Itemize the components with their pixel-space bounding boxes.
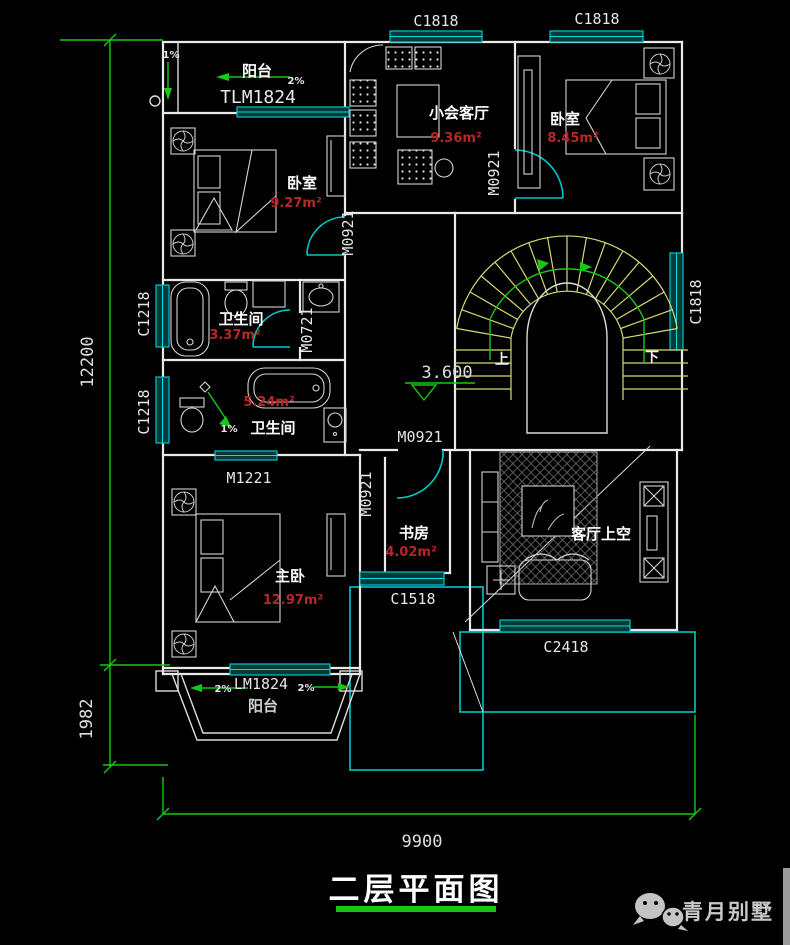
door-label-m0921-bedroom-right: M0921 xyxy=(485,150,503,195)
room-label-balcony-bottom: 阳台 xyxy=(248,697,278,715)
room-label-study: 书房 xyxy=(399,524,429,542)
slope-label-bb-right: 2% xyxy=(298,683,315,694)
door-m1221-band xyxy=(215,451,277,460)
master-furniture xyxy=(172,489,345,657)
room-label-living-void: 客厅上空 xyxy=(570,525,631,543)
window-label-c2418: C2418 xyxy=(543,638,588,656)
slope-label-bath-lower: 1% xyxy=(221,424,238,435)
wechat-icon xyxy=(633,893,688,931)
cad-floorplan-screen: C1818 C1818 C1818 C1218 C1218 C1518 C241… xyxy=(0,0,790,945)
bedroom-left-furniture xyxy=(171,128,345,256)
window-label-c1818-top-left: C1818 xyxy=(413,12,458,30)
window-label-c1818-stair: C1818 xyxy=(687,279,705,324)
title-underline xyxy=(336,906,496,912)
area-label-parlor: 9.36m² xyxy=(430,131,481,146)
slope-arrowhead-bb-left xyxy=(190,684,202,692)
room-label-parlor: 小会客厅 xyxy=(429,104,489,122)
walkline-arrow-1 xyxy=(537,259,549,271)
windows xyxy=(156,31,683,675)
dim-lines-bottom xyxy=(163,715,695,814)
slope-arrow-bath-lower xyxy=(208,392,226,419)
area-label-bath-upper: 3.37m² xyxy=(209,328,260,343)
door-label-m0921-hall: M0921 xyxy=(397,428,442,446)
door-tlm1824-band xyxy=(237,107,349,117)
area-label-bath-lower: 5.24m² xyxy=(243,395,294,410)
dim-width: 9900 xyxy=(402,832,443,852)
area-label-study: 4.02m² xyxy=(385,545,436,560)
window-c1218-bath-lower xyxy=(156,377,169,443)
level-marker-line xyxy=(405,383,475,400)
window-c2418-living xyxy=(500,620,630,632)
window-c1818-stair xyxy=(670,253,683,350)
door-label-m0721: M0721 xyxy=(298,307,316,352)
door-label-tlm1824: TLM1824 xyxy=(220,87,296,108)
room-label-master: 主卧 xyxy=(275,567,305,585)
door-label-m0921-study: M0921 xyxy=(357,471,375,516)
door-label-m1221: M1221 xyxy=(226,469,271,487)
dim-height-balcony: 1982 xyxy=(77,699,97,740)
window-label-c1218-lower: C1218 xyxy=(135,389,153,434)
window-label-c1518: C1518 xyxy=(390,590,435,608)
door-bedroom-right-swing xyxy=(515,150,563,198)
door-lm1824-band xyxy=(230,664,330,675)
slope-arrowhead-side xyxy=(164,88,172,100)
stairwell-opening xyxy=(527,283,607,433)
room-label-bath-upper: 卫生间 xyxy=(218,310,263,328)
watermark-edge-bar xyxy=(783,868,790,945)
door-label-m0921-bedroom-left: M0921 xyxy=(339,210,357,255)
watermark-text: 青月别墅 xyxy=(682,900,774,924)
roof-tiles xyxy=(350,587,695,770)
area-label-bedroom-left: 9.27m² xyxy=(270,196,321,211)
dim-height-main: 12200 xyxy=(78,336,98,387)
door-label-lm1824: LM1824 xyxy=(234,675,288,693)
roof-seam xyxy=(453,632,483,712)
slope-label-side: 1% xyxy=(163,50,180,61)
staircase xyxy=(455,236,688,433)
room-label-bath-lower: 卫生间 xyxy=(250,419,295,437)
stair-down-label: 下 xyxy=(645,350,659,366)
bedroom-right-furniture xyxy=(518,48,674,190)
window-c1518-study xyxy=(360,572,444,585)
area-label-master: 12.97m² xyxy=(263,593,323,608)
slope-arrowhead-balcony-top xyxy=(216,73,229,81)
dim-lines-left xyxy=(60,40,170,767)
roof-section-left xyxy=(350,587,483,770)
slope-label-bb-left: 2% xyxy=(215,684,232,695)
window-c1818-top-left xyxy=(390,31,482,42)
window-label-c1818-top-right: C1818 xyxy=(574,10,619,28)
level-marker-value: 3.600 xyxy=(421,363,472,383)
room-label-bedroom-left: 卧室 xyxy=(287,174,317,192)
balcony-drain xyxy=(150,96,160,106)
window-c1218-bath-upper xyxy=(156,285,169,347)
area-label-bedroom-right: 8.45m² xyxy=(547,131,598,146)
floorplan-canvas: C1818 C1818 C1818 C1218 C1218 C1518 C241… xyxy=(0,0,790,945)
door-study-swing xyxy=(397,450,443,498)
stair-up-label: 上 xyxy=(495,352,509,368)
room-label-bedroom-right: 卧室 xyxy=(550,110,580,128)
slope-label-balcony-top: 2% xyxy=(288,76,305,87)
window-label-c1218-upper: C1218 xyxy=(135,291,153,336)
drawing-title: 二层平面图 xyxy=(329,872,504,908)
room-label-balcony-top: 阳台 xyxy=(242,62,272,80)
window-c1818-top-right xyxy=(550,31,643,42)
